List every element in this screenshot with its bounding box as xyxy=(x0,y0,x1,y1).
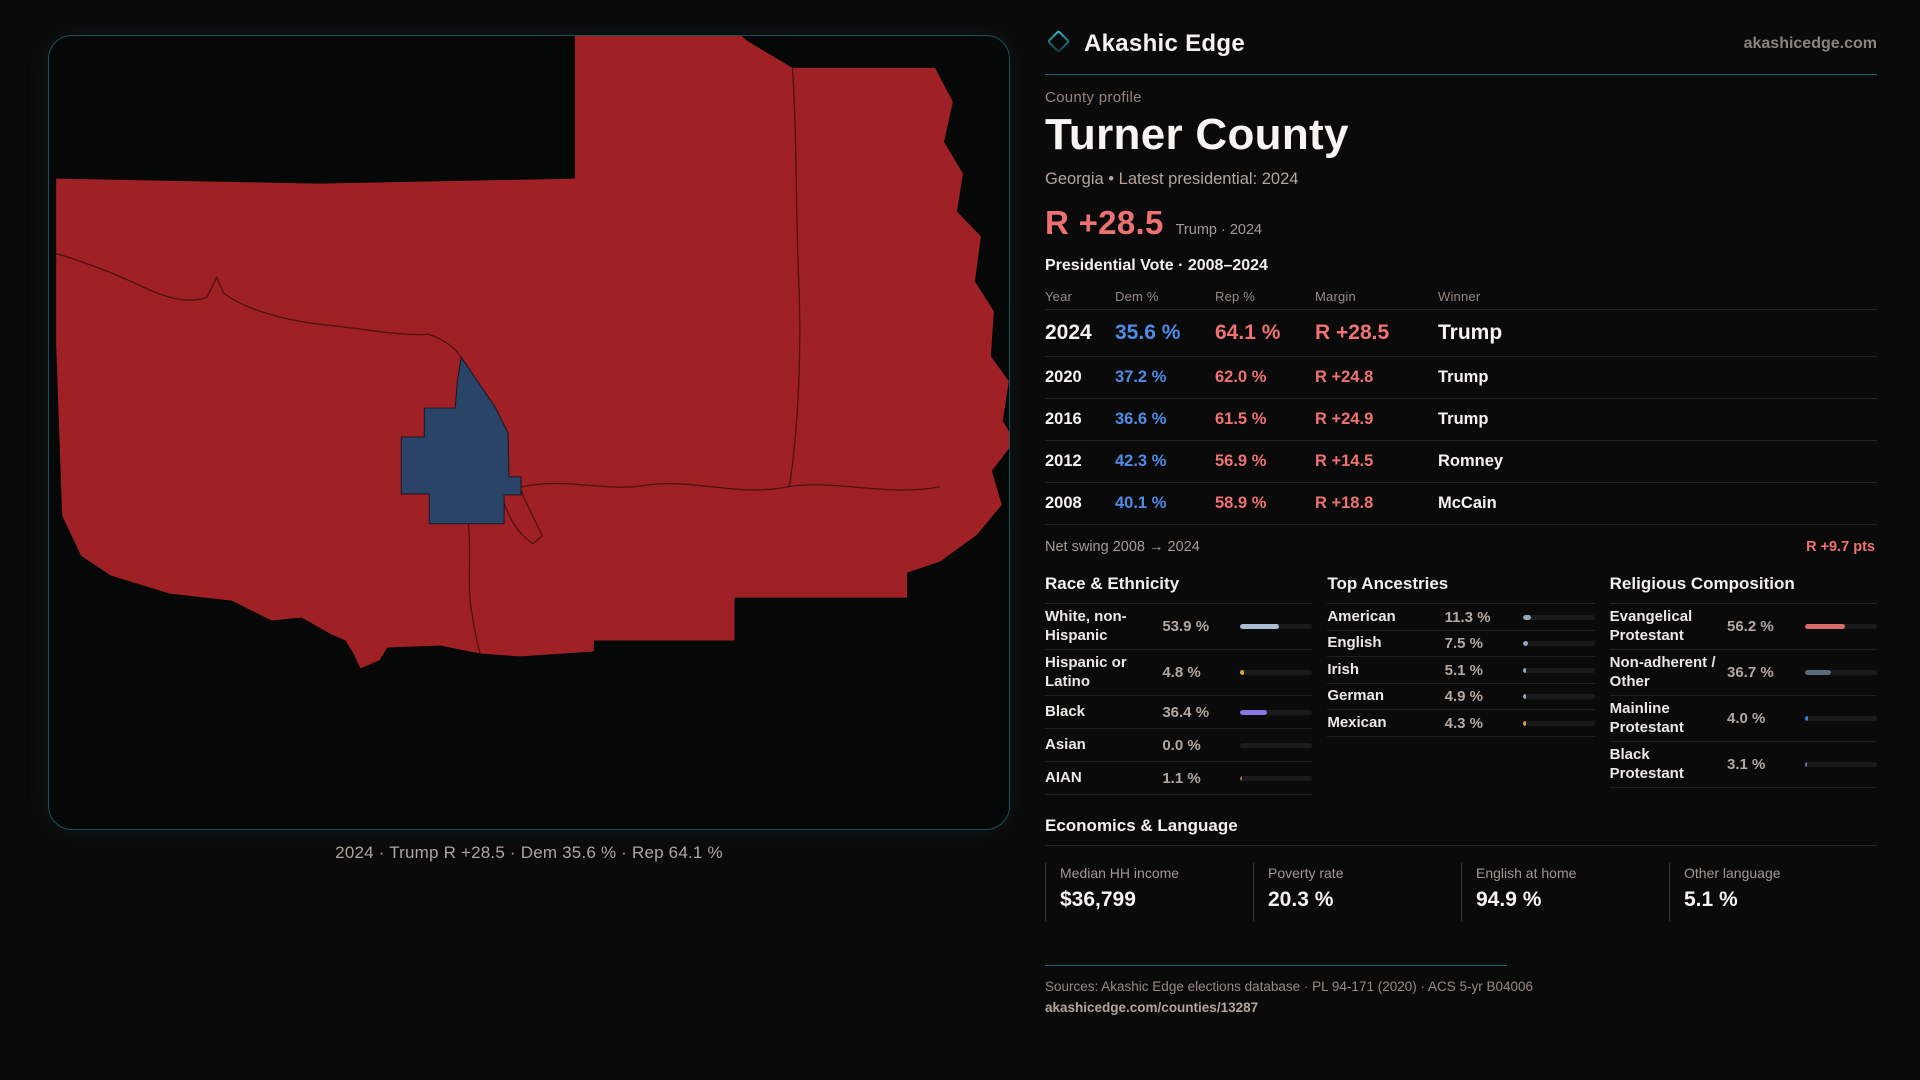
list-item: AIAN 1.1 % xyxy=(1045,762,1312,795)
row-value: 56.2 % xyxy=(1727,618,1799,635)
headline-context: Trump · 2024 xyxy=(1176,222,1263,238)
list-item: Black Protestant 3.1 % xyxy=(1610,742,1877,788)
cell-winner: Trump xyxy=(1438,368,1877,387)
list-item: Irish 5.1 % xyxy=(1327,657,1594,684)
bar-track xyxy=(1805,624,1877,629)
cell-margin: R +14.5 xyxy=(1315,452,1438,471)
race-ethnicity-panel: Race & Ethnicity White, non-Hispanic 53.… xyxy=(1045,574,1312,795)
headline-margin-row: R +28.5 Trump · 2024 xyxy=(1045,204,1877,242)
headline-margin-value: R +28.5 xyxy=(1045,204,1164,242)
row-label: Hispanic or Latino xyxy=(1045,654,1156,692)
list-item: Hispanic or Latino 4.8 % xyxy=(1045,650,1312,696)
cell-margin: R +24.8 xyxy=(1315,368,1438,387)
stat-other-language: Other language 5.1 % xyxy=(1669,863,1877,921)
economics-title: Economics & Language xyxy=(1045,816,1877,846)
row-label: Non-adherent / Other xyxy=(1610,654,1721,692)
row-value: 5.1 % xyxy=(1445,662,1517,679)
bar-track xyxy=(1805,670,1877,675)
bar-fill xyxy=(1805,762,1807,767)
table-row: 2012 42.3 % 56.9 % R +14.5 Romney xyxy=(1045,441,1877,483)
cell-winner: McCain xyxy=(1438,494,1877,513)
row-value: 36.4 % xyxy=(1162,704,1234,721)
stat-value: $36,799 xyxy=(1060,888,1253,912)
row-value: 4.9 % xyxy=(1445,688,1517,705)
economics-stats: Median HH income $36,799 Poverty rate 20… xyxy=(1045,863,1877,921)
row-label: Mexican xyxy=(1327,714,1438,733)
row-value: 3.1 % xyxy=(1727,756,1799,773)
list-item: American 11.3 % xyxy=(1327,604,1594,631)
bar-track xyxy=(1523,694,1595,699)
table-row: 2020 37.2 % 62.0 % R +24.8 Trump xyxy=(1045,357,1877,399)
net-swing-label: Net swing 2008 → 2024 xyxy=(1045,539,1200,555)
col-dem: Dem % xyxy=(1115,289,1215,304)
cell-dem: 37.2 % xyxy=(1115,368,1215,387)
bar-fill xyxy=(1805,716,1808,721)
list-item: Asian 0.0 % xyxy=(1045,729,1312,762)
row-value: 11.3 % xyxy=(1445,609,1517,626)
cell-rep: 61.5 % xyxy=(1215,410,1315,429)
table-header-row: Year Dem % Rep % Margin Winner xyxy=(1045,283,1877,310)
presidential-vote-table: Year Dem % Rep % Margin Winner 2024 35.6… xyxy=(1045,283,1877,525)
row-value: 7.5 % xyxy=(1445,635,1517,652)
stat-value: 94.9 % xyxy=(1476,888,1669,912)
row-label: AIAN xyxy=(1045,769,1156,788)
list-item: Black 36.4 % xyxy=(1045,696,1312,729)
stat-median-hh-income: Median HH income $36,799 xyxy=(1045,863,1253,921)
row-value: 0.0 % xyxy=(1162,737,1234,754)
bar-track xyxy=(1523,615,1595,620)
cell-dem: 35.6 % xyxy=(1115,321,1215,345)
bar-fill xyxy=(1240,670,1243,675)
cell-year: 2016 xyxy=(1045,410,1115,429)
cell-dem: 40.1 % xyxy=(1115,494,1215,513)
ancestries-panel-title: Top Ancestries xyxy=(1327,574,1594,604)
bar-track xyxy=(1523,641,1595,646)
sources-text: Sources: Akashic Edge elections database… xyxy=(1045,979,1533,994)
list-item: German 4.9 % xyxy=(1327,684,1594,711)
col-margin: Margin xyxy=(1315,289,1438,304)
brand-diamond-icon xyxy=(1045,28,1072,60)
stat-value: 20.3 % xyxy=(1268,888,1461,912)
stat-label: Other language xyxy=(1684,865,1877,881)
bar-track xyxy=(1240,710,1312,715)
footer: Sources: Akashic Edge elections database… xyxy=(1045,965,1877,1019)
row-label: Black xyxy=(1045,703,1156,722)
net-swing-row: Net swing 2008 → 2024 R +9.7 pts xyxy=(1045,525,1877,568)
cell-margin: R +24.9 xyxy=(1315,410,1438,429)
list-item: Mexican 4.3 % xyxy=(1327,710,1594,737)
county-map-card xyxy=(48,35,1010,830)
cell-dem: 42.3 % xyxy=(1115,452,1215,471)
bar-track xyxy=(1240,670,1312,675)
county-profile-panel: Akashic Edge akashicedge.com County prof… xyxy=(1045,28,1877,1019)
cell-margin: R +18.8 xyxy=(1315,494,1438,513)
cell-dem: 36.6 % xyxy=(1115,410,1215,429)
bar-track xyxy=(1523,721,1595,726)
list-item: Evangelical Protestant 56.2 % xyxy=(1610,604,1877,650)
bar-track xyxy=(1240,776,1312,781)
bar-track xyxy=(1805,762,1877,767)
religion-panel: Religious Composition Evangelical Protes… xyxy=(1610,574,1877,795)
bar-track xyxy=(1523,668,1595,673)
county-map xyxy=(49,36,1009,829)
bar-fill xyxy=(1523,694,1527,699)
footer-divider xyxy=(1045,965,1507,966)
cell-winner: Trump xyxy=(1438,321,1877,345)
bar-fill xyxy=(1523,721,1526,726)
bar-fill xyxy=(1240,624,1279,629)
cell-year: 2024 xyxy=(1045,321,1115,345)
table-row: 2016 36.6 % 61.5 % R +24.9 Trump xyxy=(1045,399,1877,441)
cell-winner: Romney xyxy=(1438,452,1877,471)
top-ancestries-panel: Top Ancestries American 11.3 % English 7… xyxy=(1327,574,1594,795)
col-rep: Rep % xyxy=(1215,289,1315,304)
brand-header: Akashic Edge akashicedge.com xyxy=(1045,28,1877,75)
stat-english-at-home: English at home 94.9 % xyxy=(1461,863,1669,921)
bar-track xyxy=(1240,624,1312,629)
row-value: 4.3 % xyxy=(1445,715,1517,732)
row-label: Asian xyxy=(1045,736,1156,755)
stat-poverty-rate: Poverty rate 20.3 % xyxy=(1253,863,1461,921)
bar-fill xyxy=(1523,668,1527,673)
cell-rep: 64.1 % xyxy=(1215,321,1315,345)
row-label: German xyxy=(1327,687,1438,706)
map-caption: 2024 · Trump R +28.5 · Dem 35.6 % · Rep … xyxy=(48,843,1010,863)
county-subtitle: Georgia • Latest presidential: 2024 xyxy=(1045,170,1877,189)
table-row: 2024 35.6 % 64.1 % R +28.5 Trump xyxy=(1045,310,1877,357)
row-label: Mainline Protestant xyxy=(1610,700,1721,738)
list-item: White, non-Hispanic 53.9 % xyxy=(1045,604,1312,650)
race-panel-title: Race & Ethnicity xyxy=(1045,574,1312,604)
stat-value: 5.1 % xyxy=(1684,888,1877,912)
cell-year: 2008 xyxy=(1045,494,1115,513)
bar-fill xyxy=(1523,615,1531,620)
row-value: 53.9 % xyxy=(1162,618,1234,635)
table-row: 2008 40.1 % 58.9 % R +18.8 McCain xyxy=(1045,483,1877,525)
bar-fill xyxy=(1240,710,1266,715)
row-value: 4.0 % xyxy=(1727,710,1799,727)
permalink[interactable]: akashicedge.com/counties/13287 xyxy=(1045,1000,1258,1015)
row-label: White, non-Hispanic xyxy=(1045,608,1156,646)
col-year: Year xyxy=(1045,289,1115,304)
list-item: Mainline Protestant 4.0 % xyxy=(1610,696,1877,742)
religion-panel-title: Religious Composition xyxy=(1610,574,1877,604)
cell-rep: 58.9 % xyxy=(1215,494,1315,513)
row-value: 1.1 % xyxy=(1162,770,1234,787)
row-label: Black Protestant xyxy=(1610,746,1721,784)
list-item: Non-adherent / Other 36.7 % xyxy=(1610,650,1877,696)
cell-margin: R +28.5 xyxy=(1315,321,1438,345)
net-swing-value: R +9.7 pts xyxy=(1806,539,1875,555)
row-label: American xyxy=(1327,608,1438,627)
bar-fill xyxy=(1240,776,1242,781)
cell-rep: 62.0 % xyxy=(1215,368,1315,387)
vote-table-title: Presidential Vote · 2008–2024 xyxy=(1045,257,1877,275)
row-label: Evangelical Protestant xyxy=(1610,608,1721,646)
row-value: 4.8 % xyxy=(1162,664,1234,681)
bar-track xyxy=(1240,743,1312,748)
stat-label: Median HH income xyxy=(1060,865,1253,881)
row-label: English xyxy=(1327,634,1438,653)
brand-site-link[interactable]: akashicedge.com xyxy=(1744,35,1877,53)
surrounding-counties-region xyxy=(56,36,1009,668)
row-value: 36.7 % xyxy=(1727,664,1799,681)
cell-winner: Trump xyxy=(1438,410,1877,429)
stat-label: English at home xyxy=(1476,865,1669,881)
list-item: English 7.5 % xyxy=(1327,631,1594,658)
page-title: Turner County xyxy=(1045,110,1877,159)
kicker-label: County profile xyxy=(1045,89,1877,106)
cell-year: 2020 xyxy=(1045,368,1115,387)
bar-track xyxy=(1805,716,1877,721)
cell-rep: 56.9 % xyxy=(1215,452,1315,471)
stat-label: Poverty rate xyxy=(1268,865,1461,881)
bar-fill xyxy=(1805,670,1831,675)
brand-name: Akashic Edge xyxy=(1084,30,1245,58)
bar-fill xyxy=(1523,641,1528,646)
row-label: Irish xyxy=(1327,661,1438,680)
cell-year: 2012 xyxy=(1045,452,1115,471)
bar-fill xyxy=(1805,624,1845,629)
col-winner: Winner xyxy=(1438,289,1877,304)
